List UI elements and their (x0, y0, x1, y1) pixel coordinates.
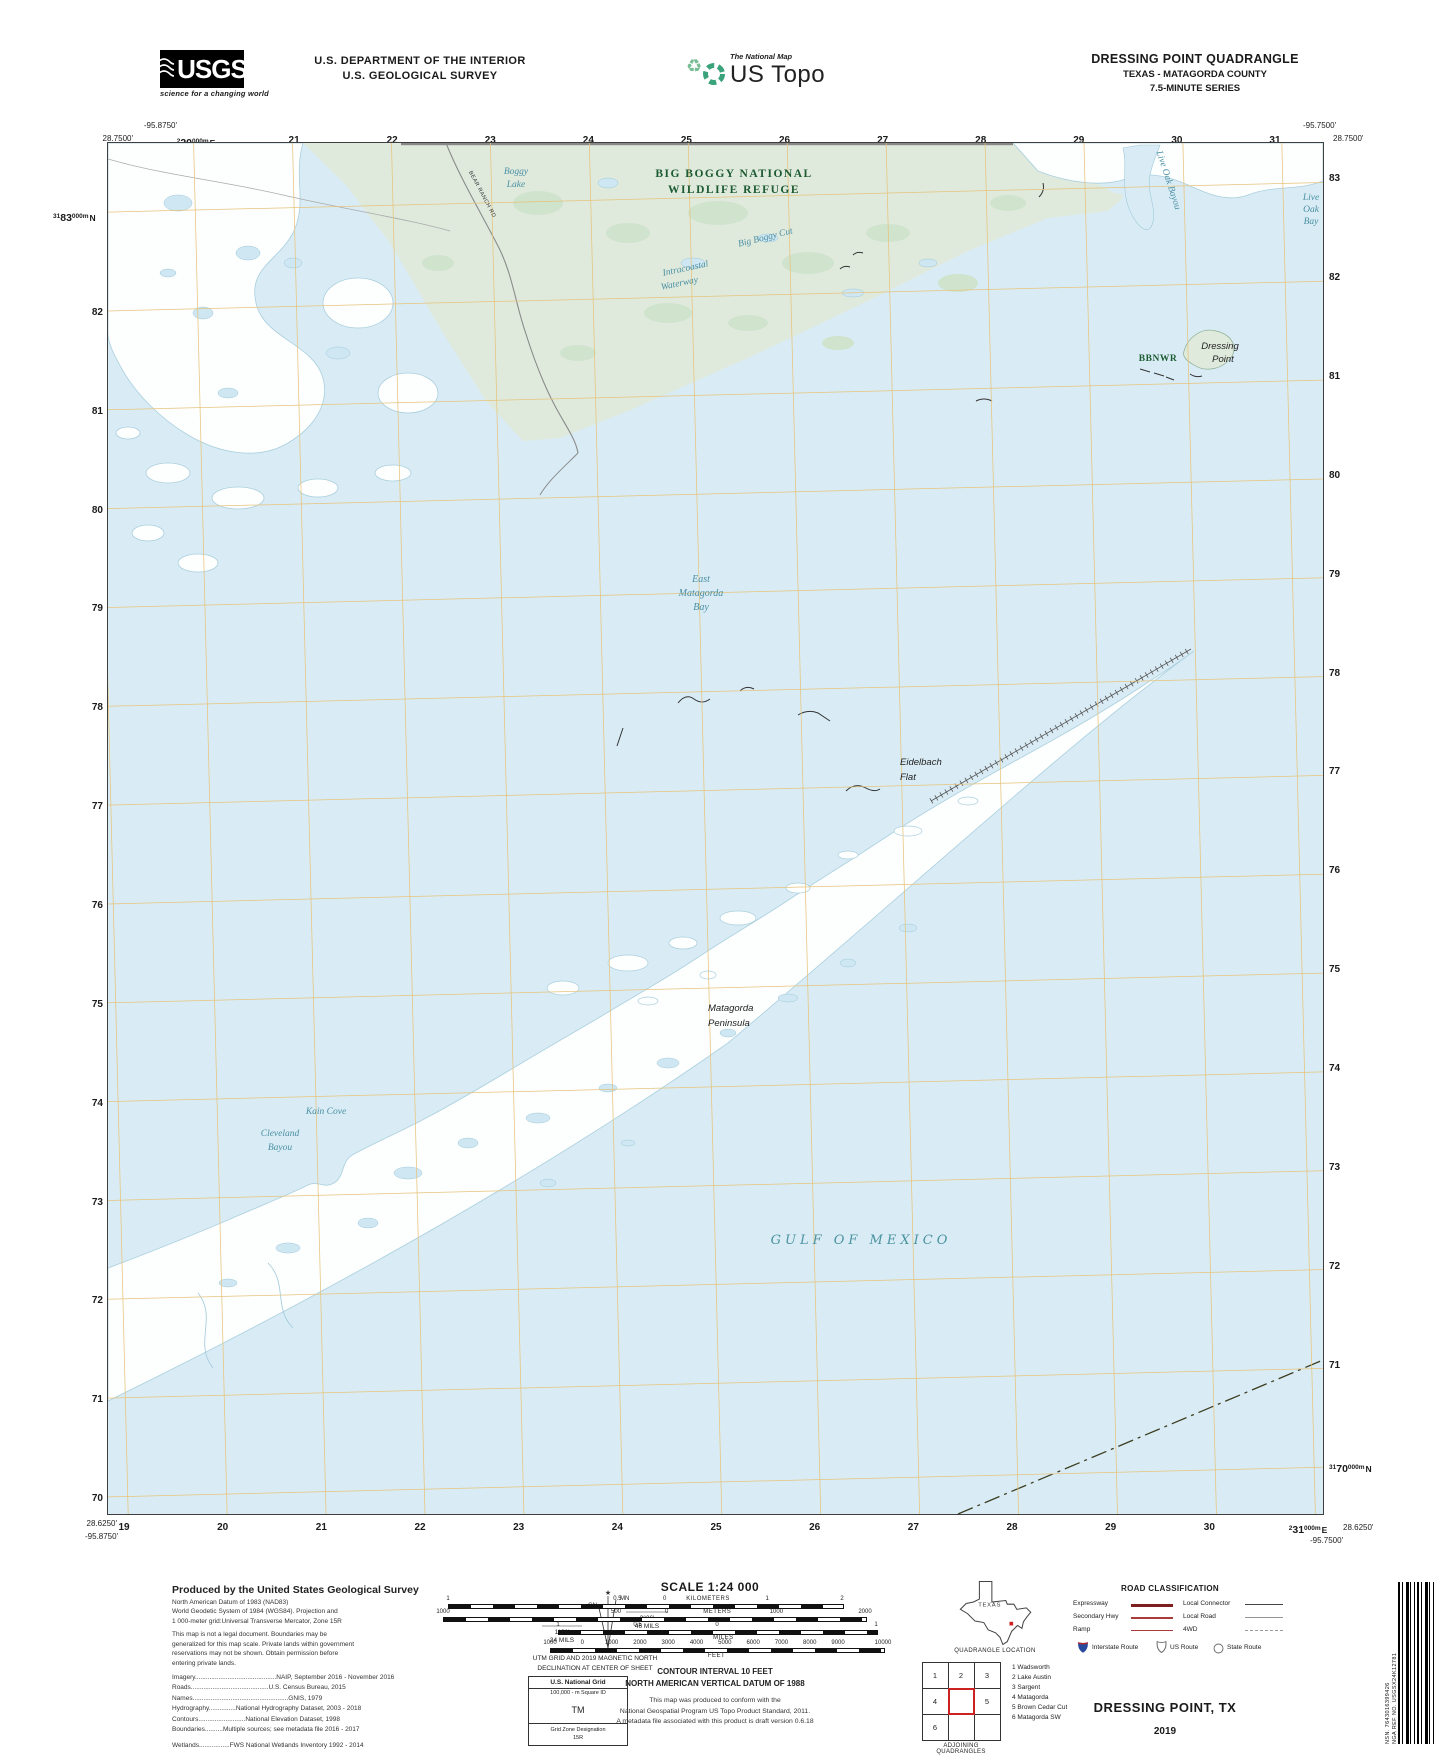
road-class-row: 4WD (1183, 1624, 1291, 1637)
scale-tick-label: 0 (715, 1622, 718, 1628)
grid-number: 71 (1329, 1360, 1340, 1371)
grid-number: 74 (1329, 1063, 1340, 1074)
scale-tick-label: 1 (446, 1596, 449, 1602)
grid-number: 70 (57, 1493, 103, 1504)
credit-line: Hydrography...............National Hydro… (172, 1704, 452, 1714)
adjoining-cell-current (948, 1688, 975, 1715)
conformance-note: This map was produced to conform with th… (495, 1696, 935, 1728)
scale-tick-label: 4000 (690, 1640, 703, 1646)
adjoining-name: 2 Lake Austin (1012, 1673, 1067, 1683)
grid-number: 73 (1329, 1162, 1340, 1173)
live-oak-bay-label-line3: Bay (1304, 217, 1320, 227)
road-class-sample (1245, 1604, 1283, 1605)
scale-tick-label: 1 (556, 1622, 559, 1628)
sheet-year: 2019 (1040, 1726, 1290, 1737)
scale-tick-label: 500 (611, 1609, 621, 1615)
road-class-sample (1131, 1630, 1173, 1631)
recycle-icon: ♻ (686, 56, 702, 77)
contour-interval: CONTOUR INTERVAL 10 FEET (495, 1666, 935, 1678)
legal-lines: This map is not a legal document. Bounda… (172, 1630, 452, 1668)
grid-number: 26 (809, 1522, 820, 1533)
grid-number: 20 (217, 1522, 228, 1533)
nga-ref-text: NGA REF NO. USGSX24K12781 (1392, 1653, 1398, 1744)
us-route-shield-icon (1155, 1640, 1167, 1658)
sheet-name: DRESSING POINT, TX (1040, 1700, 1290, 1715)
grid-number: 80 (57, 505, 103, 516)
grid-number: 82 (1329, 272, 1340, 283)
quadrangle-title-block: DRESSING POINT QUADRANGLE TEXAS - MATAGO… (1035, 52, 1355, 94)
grid-number: 24 (612, 1522, 623, 1533)
credit-line: Contours..........................Nation… (172, 1715, 452, 1725)
grid-utm-label: 231000mE (1289, 1520, 1328, 1538)
road-class-sample (1245, 1630, 1283, 1631)
road-class-sample (1131, 1604, 1173, 1607)
grid-number: 81 (57, 406, 103, 417)
credit-line: Boundaries..........Multiple sources; se… (172, 1725, 452, 1735)
cleveland-bayou-label-line1: Cleveland (261, 1129, 300, 1139)
grid-number: 79 (57, 603, 103, 614)
scale-bar (448, 1604, 844, 1609)
scale-tick-label: 10000 (875, 1640, 892, 1646)
scale-unit-label: KILOMETERS (686, 1596, 730, 1602)
scale-tick-label: 1 (765, 1596, 768, 1602)
road-class-label: 4WD (1183, 1626, 1197, 1633)
adjoining-cell: 4 (922, 1688, 949, 1715)
us-route-label: US Route (1170, 1644, 1198, 1651)
nsn-text: NSN. 7643016399426 (1385, 1682, 1391, 1744)
wetlands-credit: Wetlands.................FWS National We… (172, 1741, 452, 1751)
grid-number: 80 (1329, 470, 1340, 481)
live-oak-bay-label-line2: Oak (1303, 205, 1320, 215)
quad-location-dot (1009, 1622, 1013, 1626)
road-class-label: Local Road (1183, 1613, 1216, 1620)
texas-outline (960, 1581, 1030, 1644)
grid-number: 72 (1329, 1261, 1340, 1272)
scale-unit-label: METERS (703, 1609, 731, 1615)
road-class-sample (1131, 1617, 1173, 1619)
adjoining-cell: 6 (922, 1714, 949, 1741)
adjoining-quadrangles: 123456 ADJOINING QUADRANGLES (922, 1662, 1000, 1755)
scale-tick-label: 8000 (803, 1640, 816, 1646)
scale-tick-label: 0 (581, 1640, 584, 1646)
grid-number: 27 (908, 1522, 919, 1533)
state-route-label: State Route (1227, 1644, 1261, 1651)
legal-line: This map is not a legal document. Bounda… (172, 1630, 452, 1639)
state-locator: TEXAS (945, 1580, 1049, 1651)
state-route-circle-icon (1213, 1641, 1224, 1659)
adjoining-cell: 5 (974, 1688, 1001, 1715)
usgs-logo-text: USGS (177, 56, 247, 82)
road-classification: ROAD CLASSIFICATION ExpresswaySecondary … (1065, 1584, 1275, 1593)
road-col1: ExpresswaySecondary HwyRamp (1073, 1598, 1181, 1637)
grid-number: 78 (57, 702, 103, 713)
grid-number: 77 (57, 801, 103, 812)
datum-lines: North American Datum of 1983 (NAD83)Worl… (172, 1598, 452, 1626)
road-class-row: Secondary Hwy (1073, 1611, 1181, 1624)
grid-number: 22 (414, 1522, 425, 1533)
credit-lines: Imagery.................................… (172, 1673, 452, 1735)
datum-line: World Geodetic System of 1984 (WGS84). P… (172, 1607, 452, 1616)
adjoining-caption: ADJOINING QUADRANGLES (922, 1743, 1000, 1755)
grid-number: 29 (1105, 1522, 1116, 1533)
grid-number: 71 (57, 1394, 103, 1405)
scale-tick-label: 0 (663, 1596, 666, 1602)
interstate-route-label: Interstate Route (1092, 1644, 1138, 1651)
eidelbach-flat-label-line2: Flat (900, 772, 916, 783)
road-class-label: Local Connector (1183, 1600, 1230, 1607)
east-matagorda-bay-label-line3: Bay (693, 602, 709, 613)
map-sheet: -95.8750' 28.7500' -95.7500' 28.7500' 28… (75, 118, 1375, 1553)
grid-number: 25 (710, 1522, 721, 1533)
usgs-tagline: science for a changing world (160, 89, 269, 98)
adjoining-cell: 3 (974, 1662, 1001, 1689)
conform-line3: A metadata file associated with this pro… (495, 1717, 935, 1728)
grid-number: 75 (57, 999, 103, 1010)
refuge-label-line1: BIG BOGGY NATIONAL (655, 168, 812, 180)
produced-by-title: Produced by the United States Geological… (172, 1584, 452, 1596)
east-matagorda-bay-label-line1: East (691, 574, 710, 585)
grid-number: 76 (1329, 865, 1340, 876)
legal-line: entering private lands. (172, 1659, 452, 1668)
grid-number: 78 (1329, 668, 1340, 679)
road-class-sample (1245, 1617, 1283, 1618)
grid-number: 73 (57, 1197, 103, 1208)
road-class-row: Ramp (1073, 1624, 1181, 1637)
kain-cove-label: Kain Cove (305, 1107, 346, 1117)
top-boundary-band (401, 143, 1013, 145)
boggy-lake-label-line2: Lake (506, 180, 525, 190)
scale-tick-label: 2000 (633, 1640, 646, 1646)
adjoining-name: 3 Sargent (1012, 1683, 1067, 1693)
grid-number: 79 (1329, 569, 1340, 580)
scale-tick-label: 2000 (858, 1609, 871, 1615)
scale-bar (443, 1617, 867, 1622)
scale-tick-label: 1000 (543, 1640, 556, 1646)
route-shields-row: Interstate Route US Route State Route (1065, 1640, 1275, 1656)
usgs-waves-icon (157, 56, 175, 83)
grid-utm-label: 3170000mN (1329, 1459, 1372, 1477)
scale-tick-label: 0 (665, 1609, 668, 1615)
national-map-pinwheel-icon (702, 62, 726, 91)
scale-tick-label: 0.5 (633, 1622, 641, 1628)
datum-line: North American Datum of 1983 (NAD83) (172, 1598, 452, 1607)
scale-tick-label: 0.5 (613, 1596, 621, 1602)
road-classification-title: ROAD CLASSIFICATION (1065, 1584, 1275, 1593)
quadrangle-title: DRESSING POINT QUADRANGLE (1035, 52, 1355, 66)
adjoining-cell: 1 (922, 1662, 949, 1689)
scale-tick-label: 1000 (605, 1640, 618, 1646)
datum-line: 1 000-meter grid:Universal Transverse Me… (172, 1617, 452, 1626)
road-class-row: Expressway (1073, 1598, 1181, 1611)
matagorda-peninsula-label-line2: Peninsula (708, 1018, 750, 1029)
texas-label: TEXAS (978, 1602, 1001, 1608)
grid-number: 23 (513, 1522, 524, 1533)
scale-tick-label: 6000 (746, 1640, 759, 1646)
eidelbach-flat-label-line1: Eidelbach (900, 757, 942, 768)
department-heading: U.S. DEPARTMENT OF THE INTERIOR U.S. GEO… (240, 54, 600, 85)
legal-line: reservations may not be shown. Obtain pe… (172, 1649, 452, 1658)
dressing-point-label-line2: Point (1212, 354, 1234, 365)
scale-unit-label: FEET (708, 1653, 725, 1659)
scale-title: SCALE 1:24 000 (540, 1580, 880, 1594)
adjoining-cell (974, 1714, 1001, 1741)
credit-line: Imagery.................................… (172, 1673, 452, 1683)
interstate-shield-icon (1077, 1640, 1089, 1658)
grid-number: 83 (1329, 173, 1340, 184)
grid-number: 81 (1329, 371, 1340, 382)
scale-bars: 10.5012KILOMETERS1000500010002000METERS1… (430, 1596, 900, 1660)
map-canvas: BIG BOGGY NATIONAL WILDLIFE REFUGE Boggy… (107, 142, 1324, 1515)
quadrangle-series: 7.5-MINUTE SERIES (1035, 83, 1355, 94)
dept-line1: U.S. DEPARTMENT OF THE INTERIOR (240, 54, 600, 69)
usgs-topo-sheet: { "header": { "usgs_logo": "USGS", "usgs… (0, 0, 1445, 1746)
cleveland-bayou-label-line2: Bayou (268, 1143, 293, 1153)
boggy-lake-label-line1: Boggy (504, 167, 529, 177)
grid-number: 19 (118, 1522, 129, 1533)
contour-info: CONTOUR INTERVAL 10 FEET NORTH AMERICAN … (495, 1666, 935, 1690)
usng-square-label: 100,000 - m Square ID (529, 1689, 627, 1696)
bbnwr-label: BBNWR (1139, 354, 1177, 364)
grid-number: 77 (1329, 766, 1340, 777)
gulf-of-mexico-label: GULF OF MEXICO (771, 1233, 952, 1248)
vertical-datum: NORTH AMERICAN VERTICAL DATUM OF 1988 (495, 1678, 935, 1690)
natmap-small-text: The National Map (730, 52, 825, 61)
quadrangle-location-caption: QUADRANGLE LOCATION (930, 1648, 1060, 1654)
legal-line: generalized for this map scale. Private … (172, 1640, 452, 1649)
grid-number: 74 (57, 1098, 103, 1109)
grid-number: 82 (57, 307, 103, 318)
scale-tick-label: 2 (840, 1596, 843, 1602)
credit-line: Roads...................................… (172, 1683, 452, 1693)
conform-line1: This map was produced to conform with th… (495, 1696, 935, 1707)
adjoining-cell: 2 (948, 1662, 975, 1689)
matagorda-peninsula-label-line1: Matagorda (708, 1003, 753, 1014)
scale-tick-label: 5000 (718, 1640, 731, 1646)
dressing-point-label-line1: Dressing (1201, 341, 1239, 352)
conform-line2: National Geospatial Program US Topo Prod… (495, 1707, 935, 1718)
east-matagorda-bay-label-line2: Matagorda (678, 588, 724, 599)
road-class-row: Local Road (1183, 1611, 1291, 1624)
road-class-label: Ramp (1073, 1626, 1090, 1633)
live-oak-bay-label-line1: Live (1302, 193, 1319, 203)
credit-line: Names...................................… (172, 1694, 452, 1704)
refuge-label-line2: WILDLIFE REFUGE (668, 184, 800, 196)
road-class-row: Local Connector (1183, 1598, 1291, 1611)
production-credits: Produced by the United States Geological… (172, 1584, 452, 1752)
road-class-label: Secondary Hwy (1073, 1613, 1119, 1620)
adjoining-name: 1 Wadsworth (1012, 1663, 1067, 1673)
scale-tick-label: 1000 (770, 1609, 783, 1615)
grid-number: 28 (1006, 1522, 1017, 1533)
scale-tick-label: 7000 (775, 1640, 788, 1646)
scale-tick-label: 1000 (436, 1609, 449, 1615)
scale-tick-label: 1 (874, 1622, 877, 1628)
adjoining-grid: 123456 (922, 1662, 1000, 1740)
grid-number: 21 (316, 1522, 327, 1533)
grid-number: 76 (57, 900, 103, 911)
natmap-large-text: US Topo (730, 61, 825, 89)
quadrangle-subtitle: TEXAS - MATAGORDA COUNTY (1035, 69, 1355, 80)
grid-utm-label: 3183000mN (53, 208, 96, 226)
grid-number: 75 (1329, 964, 1340, 975)
map-svg: BIG BOGGY NATIONAL WILDLIFE REFUGE Boggy… (108, 143, 1323, 1514)
road-col2: Local ConnectorLocal Road4WD (1183, 1598, 1291, 1637)
usng-zone-value: 15R (529, 1734, 627, 1742)
road-class-label: Expressway (1073, 1600, 1108, 1607)
scale-tick-label: 9000 (831, 1640, 844, 1646)
dept-line2: U.S. GEOLOGICAL SURVEY (240, 69, 600, 84)
ustopo-logo: The National Map US Topo (702, 52, 825, 91)
barcode (1398, 1582, 1434, 1744)
scale-tick-label: 3000 (662, 1640, 675, 1646)
grid-number: 30 (1204, 1522, 1215, 1533)
grid-number: 72 (57, 1295, 103, 1306)
adjoining-cell (948, 1714, 975, 1741)
